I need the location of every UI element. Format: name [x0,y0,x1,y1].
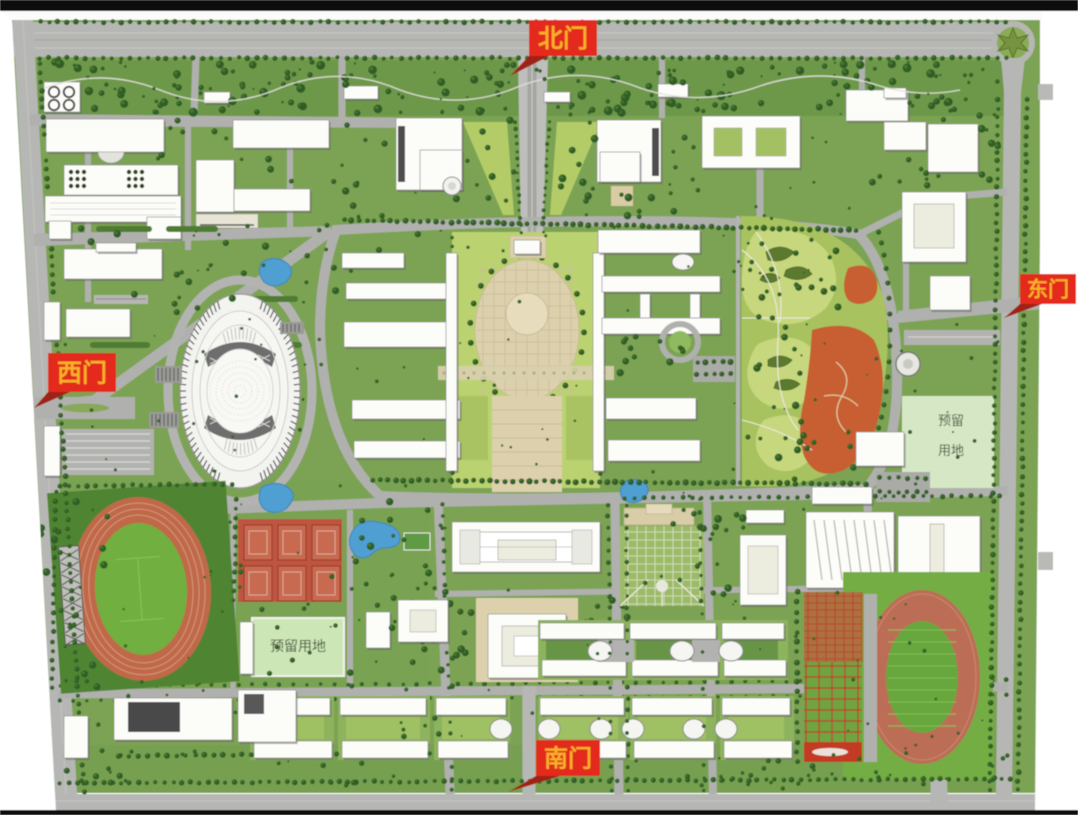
svg-text:南门: 南门 [544,745,592,773]
svg-text:东门: 东门 [1027,278,1069,302]
svg-text:西门: 西门 [57,359,107,388]
svg-text:北门: 北门 [538,24,588,53]
svg-text:用地: 用地 [938,443,964,458]
svg-text:预留: 预留 [938,413,964,428]
